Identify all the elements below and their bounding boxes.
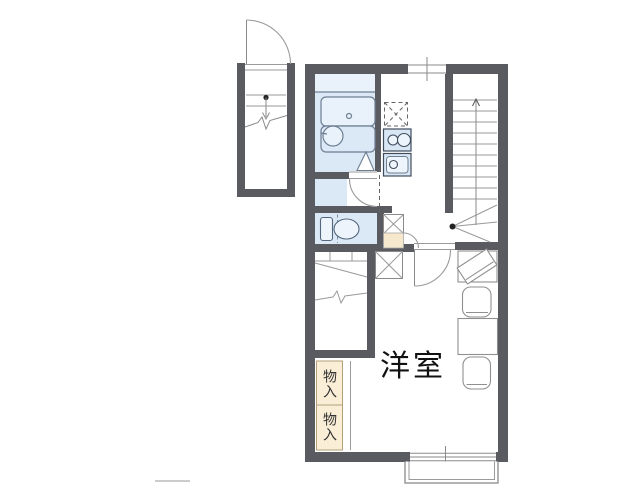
storage-label-upper: 物入 [320, 369, 340, 405]
gas-stove-icon [384, 129, 412, 151]
dining-table-icon [458, 319, 498, 355]
staircase-icon [450, 99, 498, 242]
chair-icon [463, 287, 492, 317]
porch-steps-icon [245, 95, 287, 129]
entry-porch [237, 20, 295, 197]
washing-machine-space-icon [384, 215, 404, 234]
furniture [457, 249, 497, 389]
tv-board-icon [457, 249, 497, 284]
appliance-space-icon [376, 252, 403, 279]
entrance-door-icon [245, 20, 291, 70]
room-label-main: 洋室 [380, 341, 452, 385]
toilet-room [315, 213, 377, 244]
storage-label-lower: 物入 [320, 412, 340, 448]
bathtub-icon [321, 97, 375, 126]
closet-icon [315, 252, 367, 303]
washroom-door-icon [350, 179, 378, 207]
washing-machine-area [384, 215, 419, 249]
step-mat [384, 233, 404, 248]
balcony-icon [405, 462, 498, 484]
stair-direction-arrow-icon [450, 99, 480, 230]
kitchen-sink-icon [384, 154, 412, 177]
floor-plan: 洋室 物入 物入 [0, 0, 640, 495]
chair-icon-2 [463, 357, 491, 389]
toilet-icon [321, 218, 360, 241]
window-top-icon [408, 57, 446, 81]
bathroom [315, 74, 375, 172]
room-door-icon [414, 244, 455, 287]
kitchen [384, 103, 412, 177]
refrigerator-space-icon [385, 103, 408, 127]
